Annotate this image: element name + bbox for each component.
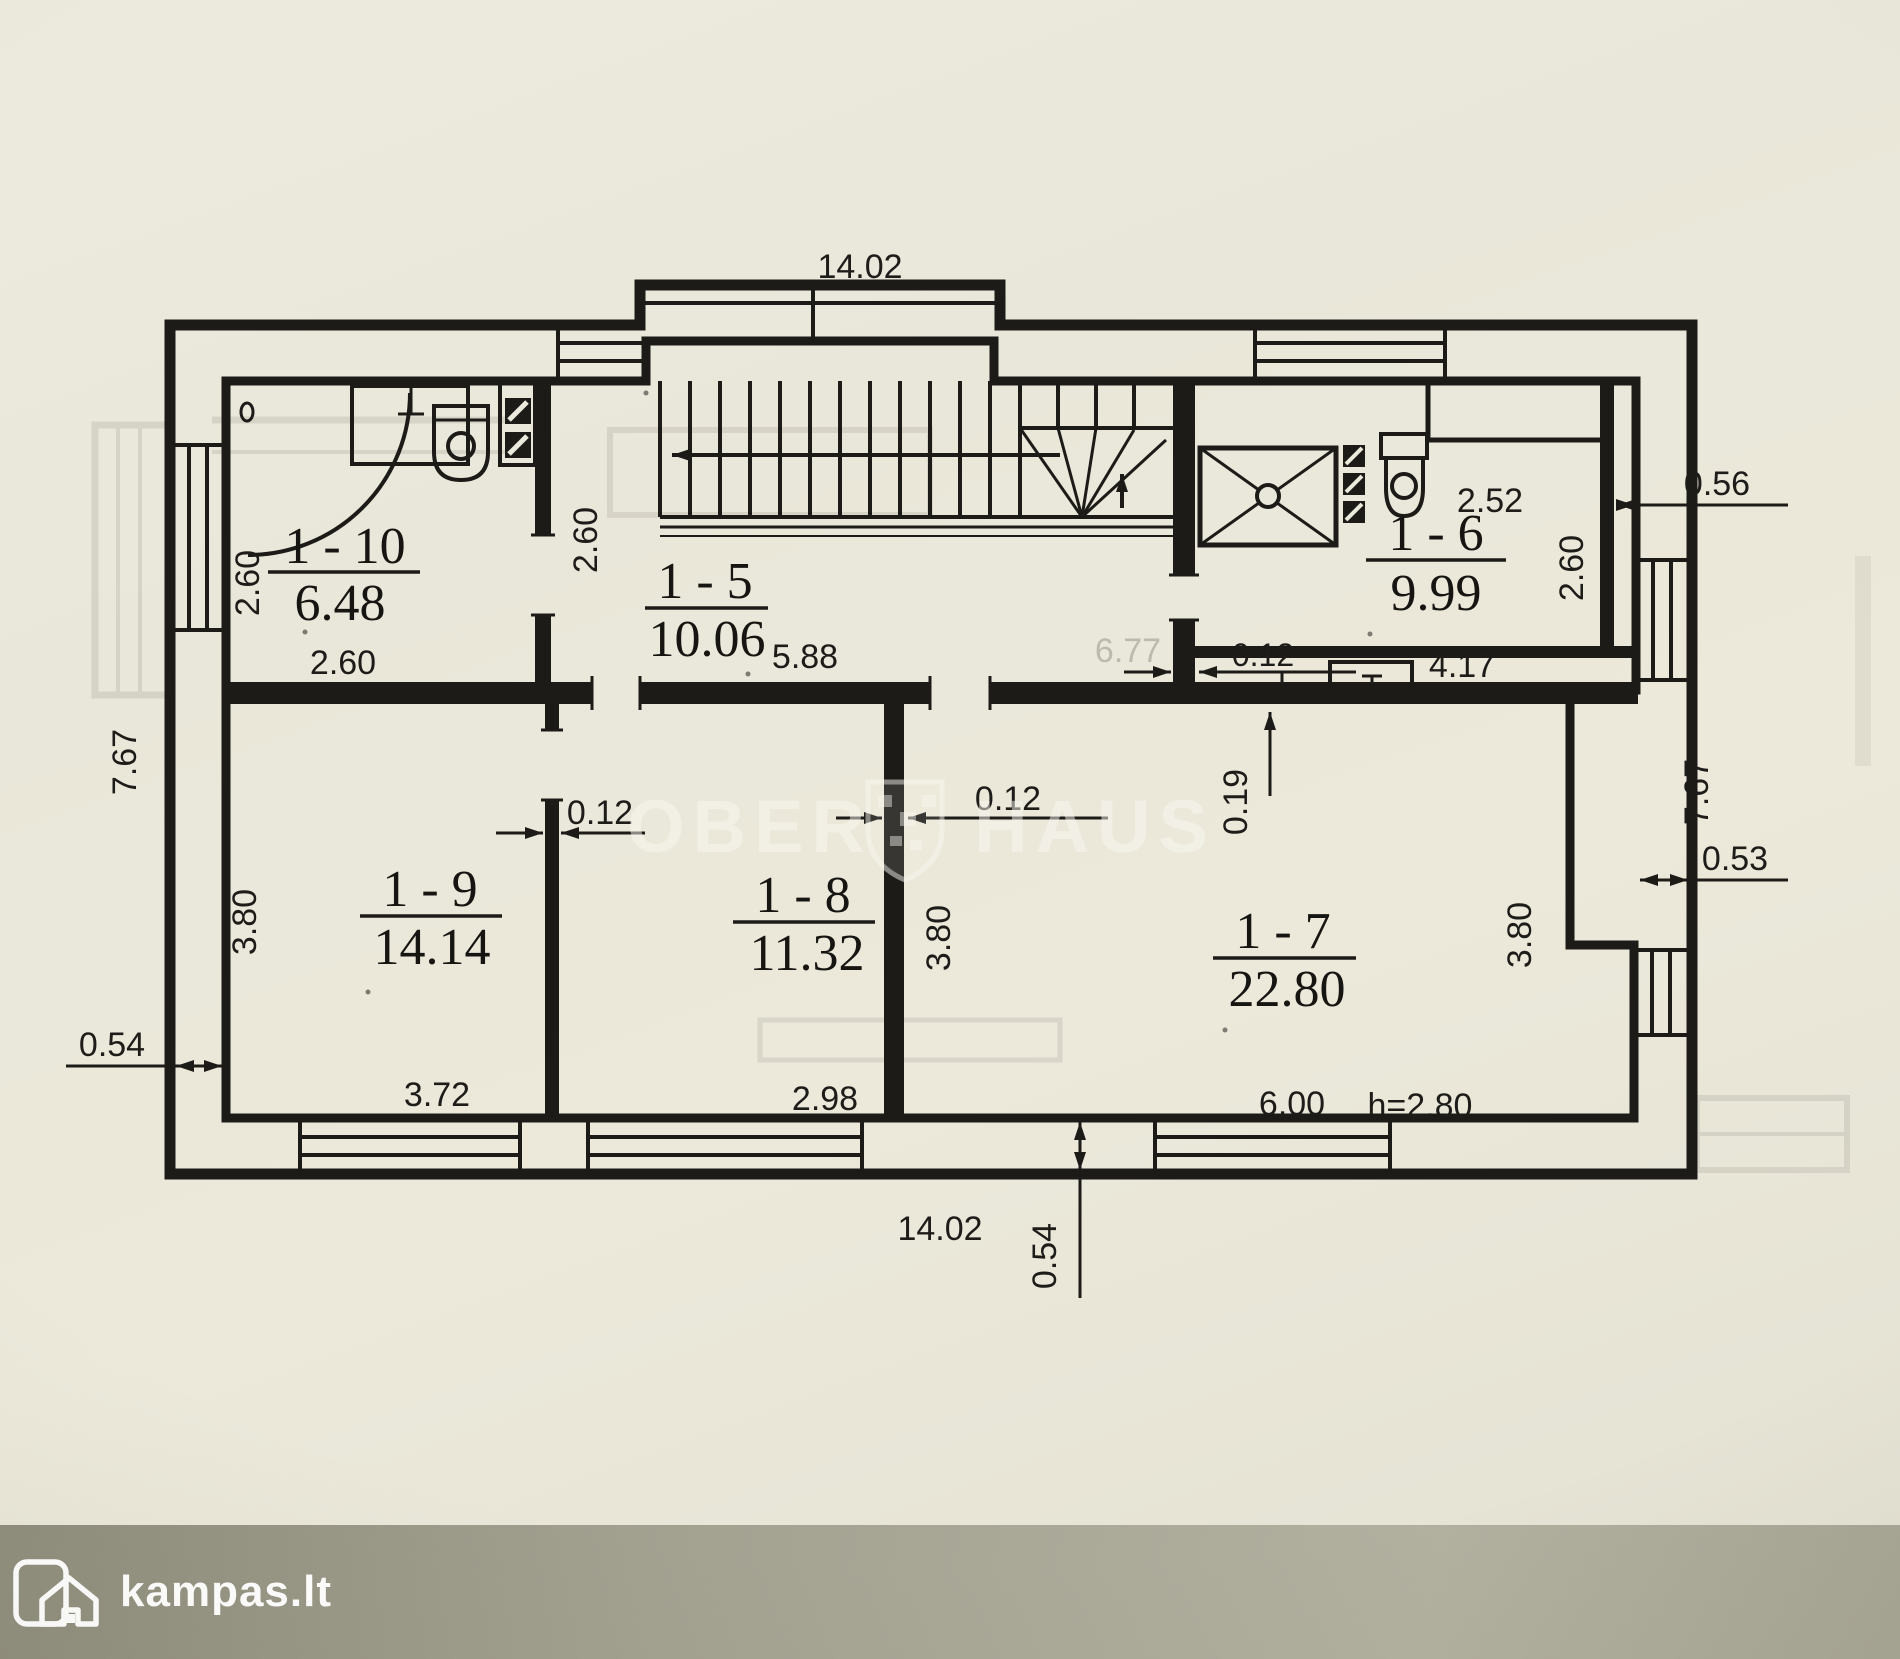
room-label-group-1-8: 1 - 8 11.32 xyxy=(733,867,875,982)
room-label-group-1-5: 1 - 5 10.06 xyxy=(645,553,768,668)
dim-r16-right-height: 2.60 xyxy=(1553,535,1591,601)
dim-r17-right-height: 3.80 xyxy=(1501,902,1539,968)
wall-b-upper xyxy=(545,704,559,730)
vent-duct-icons xyxy=(1343,445,1365,523)
wall-a-left xyxy=(226,682,592,704)
dim-overall-height-right: 7.67 xyxy=(1678,759,1716,825)
room-label-group-1-9: 1 - 9 14.14 xyxy=(360,861,502,976)
dim-hall-width: 5.88 xyxy=(772,638,838,676)
shower-icon xyxy=(1200,448,1336,545)
room-number: 1 - 7 xyxy=(1235,903,1330,960)
dim-wall-019: 0.19 xyxy=(1217,769,1255,835)
room-number: 1 - 6 xyxy=(1388,505,1483,562)
dim-r19-height: 3.80 xyxy=(226,889,264,955)
watermark-shield-icon xyxy=(868,782,942,880)
room-number: 1 - 5 xyxy=(657,553,752,610)
dim-hall-height: 2.60 xyxy=(567,507,605,573)
dim-r110-width: 2.60 xyxy=(310,644,376,682)
dim-wall-left: 0.54 xyxy=(79,1026,145,1064)
room-number: 1 - 10 xyxy=(284,518,405,575)
wall-stair-upper xyxy=(1173,381,1195,575)
dim-wall-right: 0.53 xyxy=(1702,840,1768,878)
dim-ceiling-height: h=2.80 xyxy=(1368,1087,1473,1125)
wall-b-lower xyxy=(545,800,559,1118)
dim-overall-width-bottom: 14.02 xyxy=(897,1210,982,1248)
wall-stair-lower xyxy=(1173,620,1195,682)
room-area: 11.32 xyxy=(749,925,864,982)
room-number: 1 - 8 xyxy=(755,867,850,924)
room-number: 1 - 9 xyxy=(382,861,477,918)
window-bottom-room19 xyxy=(300,1118,520,1174)
wall-a-right xyxy=(990,682,1638,704)
dim-wall-bottom: 0.54 xyxy=(1026,1223,1064,1289)
dim-r17-width: 6.00 xyxy=(1259,1085,1325,1123)
watermark: OBER HAUS xyxy=(627,782,1216,880)
room-label-group-1-7: 1 - 7 22.80 xyxy=(1213,903,1356,1018)
window-top-hall xyxy=(558,325,646,381)
room-label-group-1-6: 1 - 6 9.99 xyxy=(1366,505,1506,622)
ghost-dim-value: 6.77 xyxy=(1095,632,1161,670)
dim-r18-width: 2.98 xyxy=(792,1080,858,1118)
dim-overall-width-top: 14.02 xyxy=(817,248,902,286)
dimension-labels: 14.02 0.56 2.52 2.60 2.60 2.60 2.60 5.88… xyxy=(79,248,1768,1289)
wall-r16-step xyxy=(1428,381,1600,440)
room-area: 22.80 xyxy=(1229,961,1346,1018)
window-bottom-room18 xyxy=(588,1118,862,1174)
dim-offset-top-right: 0.56 xyxy=(1684,465,1750,503)
watermark-ober-text: OBER xyxy=(627,785,873,868)
dim-r19-width: 3.72 xyxy=(404,1076,470,1114)
wall-c xyxy=(884,704,904,1118)
dim-overall-height-left: 7.67 xyxy=(106,729,144,795)
window-top-right xyxy=(1255,325,1445,381)
wall-r16-right xyxy=(1600,381,1614,648)
dim-r17-left-height: 3.80 xyxy=(920,905,958,971)
window-right-upper xyxy=(1636,560,1692,680)
toilet-icon xyxy=(1381,434,1427,516)
dim-r16-width: 4.17 xyxy=(1429,647,1495,685)
room-area: 14.14 xyxy=(374,919,491,976)
kampas-logo-text: kampas.lt xyxy=(120,1567,332,1617)
room-area: 10.06 xyxy=(649,611,766,668)
dim-partition-right: 0.12 xyxy=(1232,637,1294,673)
kampas-logo-icon xyxy=(12,1554,104,1630)
vent-duct-icons xyxy=(505,398,531,458)
dim-partition-left: 0.12 xyxy=(567,794,633,832)
wall-hall-lower xyxy=(535,615,551,682)
dim-r110-height: 2.60 xyxy=(229,550,267,616)
room-area: 6.48 xyxy=(295,575,386,632)
wall-a-mid xyxy=(640,682,930,704)
room-area: 9.99 xyxy=(1391,565,1482,622)
window-left-bathroom xyxy=(170,445,226,630)
room-label-group-1-10: 1 - 10 6.48 xyxy=(268,518,420,632)
floor-plan-drawing: 6.77 xyxy=(0,0,1900,1659)
window-right-lower xyxy=(1634,950,1692,1035)
wall-hall-upper xyxy=(535,381,551,535)
window-bottom-room17 xyxy=(1155,1118,1390,1174)
watermark-haus-text: HAUS xyxy=(974,785,1216,868)
footer-bar: kampas.lt xyxy=(0,1525,1900,1659)
scanned-floor-plan-page: 6.77 xyxy=(0,0,1900,1659)
